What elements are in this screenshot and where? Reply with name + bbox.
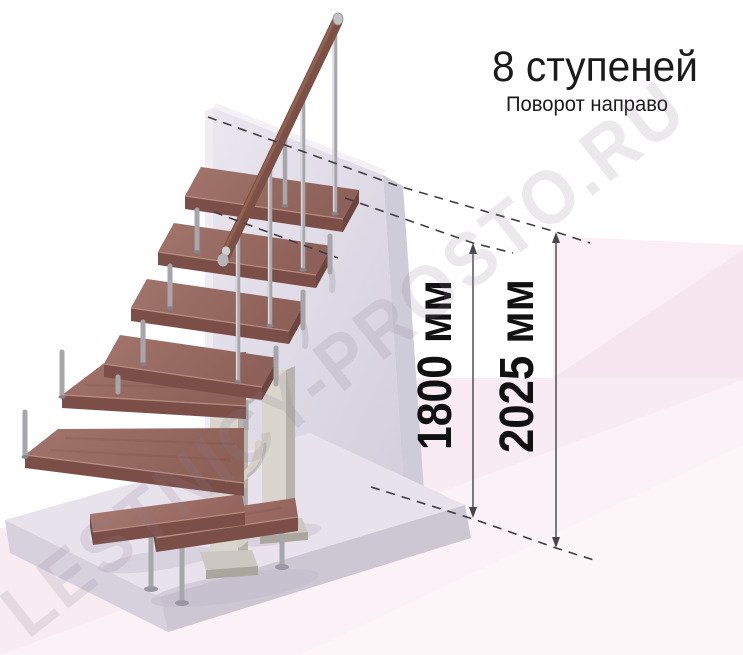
pink-back-wall [553,236,743,378]
handrail-end-cap [218,254,229,267]
staircase-render: 1800 мм 2025 мм 8 ступеней Поворот напра… [0,0,743,655]
handrail-top-cap [333,13,343,25]
dimension-label-2025: 2025 мм [491,279,544,453]
staircase-dimension-diagram: 1800 мм 2025 мм 8 ступеней Поворот напра… [0,0,743,655]
step-2-leg-foot [144,586,158,592]
diagram-title: 8 ступеней [492,43,698,91]
